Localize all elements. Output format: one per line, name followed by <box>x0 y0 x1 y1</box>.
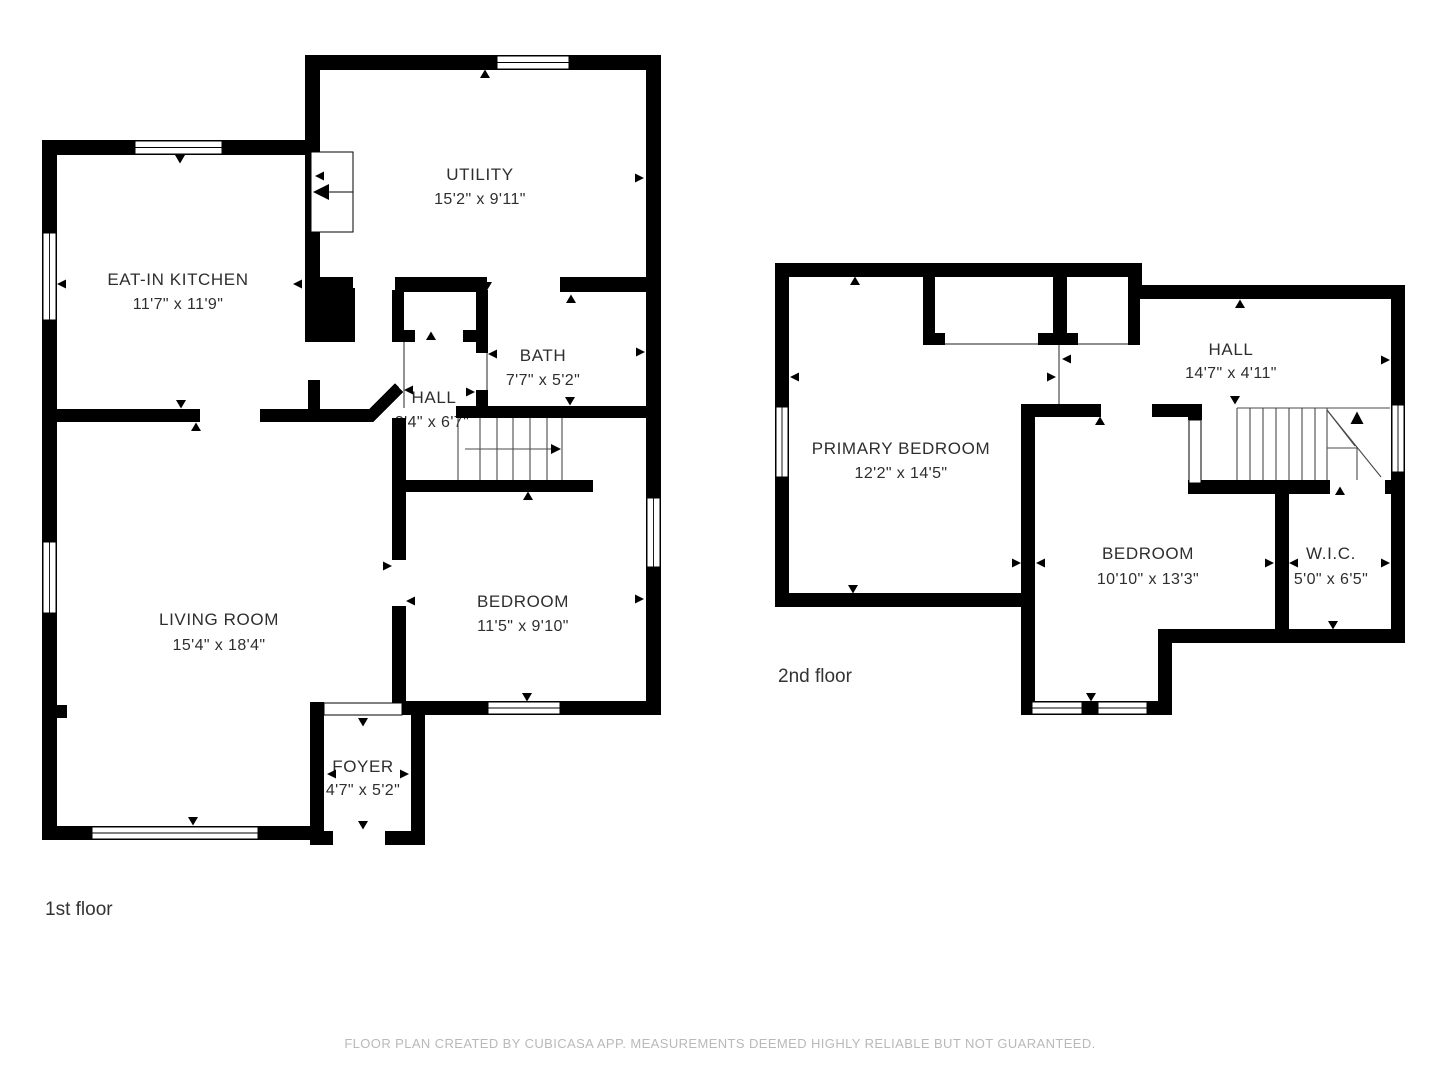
door-arrow <box>404 386 413 395</box>
room-dims-wic: 5'0" x 6'5" <box>1294 571 1368 588</box>
door-arrow <box>176 400 186 409</box>
window <box>92 827 258 839</box>
floorplan-canvas: UTILITY 15'2" x 9'11" EAT-IN KITCHEN 11'… <box>0 0 1440 1080</box>
door-arrow <box>1265 559 1274 568</box>
door-arrow <box>1381 356 1390 365</box>
room-name-bedroom-1: BEDROOM <box>477 592 569 611</box>
door-arrow <box>400 770 409 779</box>
window <box>43 542 56 613</box>
door-arrow <box>426 332 436 341</box>
room-dims-living: 15'4" x 18'4" <box>173 637 266 654</box>
floor-label-2nd: 2nd floor <box>778 666 853 687</box>
door-arrow <box>383 562 392 571</box>
window <box>488 702 560 714</box>
room-name-hall-1: HALL <box>412 388 457 407</box>
window <box>776 407 788 477</box>
footer-disclaimer: FLOOR PLAN CREATED BY CUBICASA APP. MEAS… <box>344 1036 1095 1051</box>
door-arrow <box>1086 693 1096 702</box>
door-arrow <box>191 423 201 432</box>
door-arrow <box>1230 396 1240 405</box>
window <box>647 498 660 567</box>
room-dims-foyer: 4'7" x 5'2" <box>326 782 400 799</box>
door-arrow <box>566 295 576 304</box>
window <box>1392 405 1404 472</box>
room-dims-primary-bedroom: 12'2" x 14'5" <box>855 465 948 482</box>
door-arrow <box>488 350 497 359</box>
room-dims-hall-2: 14'7" x 4'11" <box>1185 365 1277 382</box>
room-name-wic: W.I.C. <box>1306 544 1356 563</box>
first-floor-plan: UTILITY 15'2" x 9'11" EAT-IN KITCHEN 11'… <box>42 55 661 845</box>
door-arrow <box>1289 559 1298 568</box>
room-dims-utility: 15'2" x 9'11" <box>434 191 526 208</box>
second-floor-plan: PRIMARY BEDROOM 12'2" x 14'5" HALL 14'7"… <box>775 263 1405 715</box>
door-arrow <box>565 397 575 406</box>
door-arrow <box>1235 300 1245 309</box>
door-arrow <box>1381 559 1390 568</box>
window <box>1032 702 1082 714</box>
window <box>1098 702 1147 714</box>
door-arrow <box>790 373 799 382</box>
door-arrow <box>1095 417 1105 426</box>
door-arrow <box>175 155 185 164</box>
door-arrow <box>1335 487 1345 496</box>
door-arrow <box>635 595 644 604</box>
room-dims-kitchen: 11'7" x 11'9" <box>133 296 224 313</box>
door-arrow <box>480 70 490 79</box>
chimney-block <box>305 288 355 342</box>
room-name-utility: UTILITY <box>446 165 514 184</box>
staircase-first-floor <box>458 418 562 480</box>
door-arrow <box>635 174 644 183</box>
window <box>497 56 569 69</box>
door-arrow <box>1012 559 1021 568</box>
door-arrow <box>522 693 532 702</box>
door-arrow <box>57 280 66 289</box>
room-name-hall-2: HALL <box>1209 340 1254 359</box>
door-arrow <box>1047 373 1056 382</box>
door-arrow <box>358 718 368 727</box>
room-name-kitchen: EAT-IN KITCHEN <box>107 270 248 289</box>
room-dims-bedroom-2: 10'10" x 13'3" <box>1097 571 1199 588</box>
door-arrow <box>523 492 533 501</box>
staircase-second-floor <box>1237 408 1390 480</box>
stairs-up-direction-arrow <box>551 444 561 454</box>
stairs-up-arrow <box>1351 412 1364 425</box>
door-arrow <box>188 817 198 826</box>
room-dims-bath: 7'7" x 5'2" <box>506 372 580 389</box>
door-arrow <box>850 277 860 286</box>
floorplan-page: UTILITY 15'2" x 9'11" EAT-IN KITCHEN 11'… <box>0 0 1440 1080</box>
cased-opening-foyer <box>324 703 402 715</box>
front-door-arrow <box>358 821 368 830</box>
door-arrow <box>1036 559 1045 568</box>
door-arrow <box>1328 621 1338 630</box>
floor-label-1st: 1st floor <box>45 899 113 920</box>
room-name-bedroom-2: BEDROOM <box>1102 544 1194 563</box>
room-name-bath: BATH <box>520 346 566 365</box>
room-name-primary-bedroom: PRIMARY BEDROOM <box>812 439 990 458</box>
door-arrow <box>406 597 415 606</box>
door-arrow <box>293 280 302 289</box>
door-arrow <box>848 585 858 594</box>
window <box>135 141 222 154</box>
room-name-foyer: FOYER <box>332 757 394 776</box>
window <box>43 233 56 320</box>
door-arrow <box>636 348 645 357</box>
room-dims-bedroom-1: 11'5" x 9'10" <box>477 618 569 635</box>
room-name-living: LIVING ROOM <box>159 610 279 629</box>
stair-railing-opening <box>1189 420 1201 483</box>
second-floor-thin-lines <box>935 344 1128 404</box>
door-arrow <box>466 388 475 397</box>
door-arrow <box>1062 355 1071 364</box>
second-floor-walls <box>775 263 1405 715</box>
